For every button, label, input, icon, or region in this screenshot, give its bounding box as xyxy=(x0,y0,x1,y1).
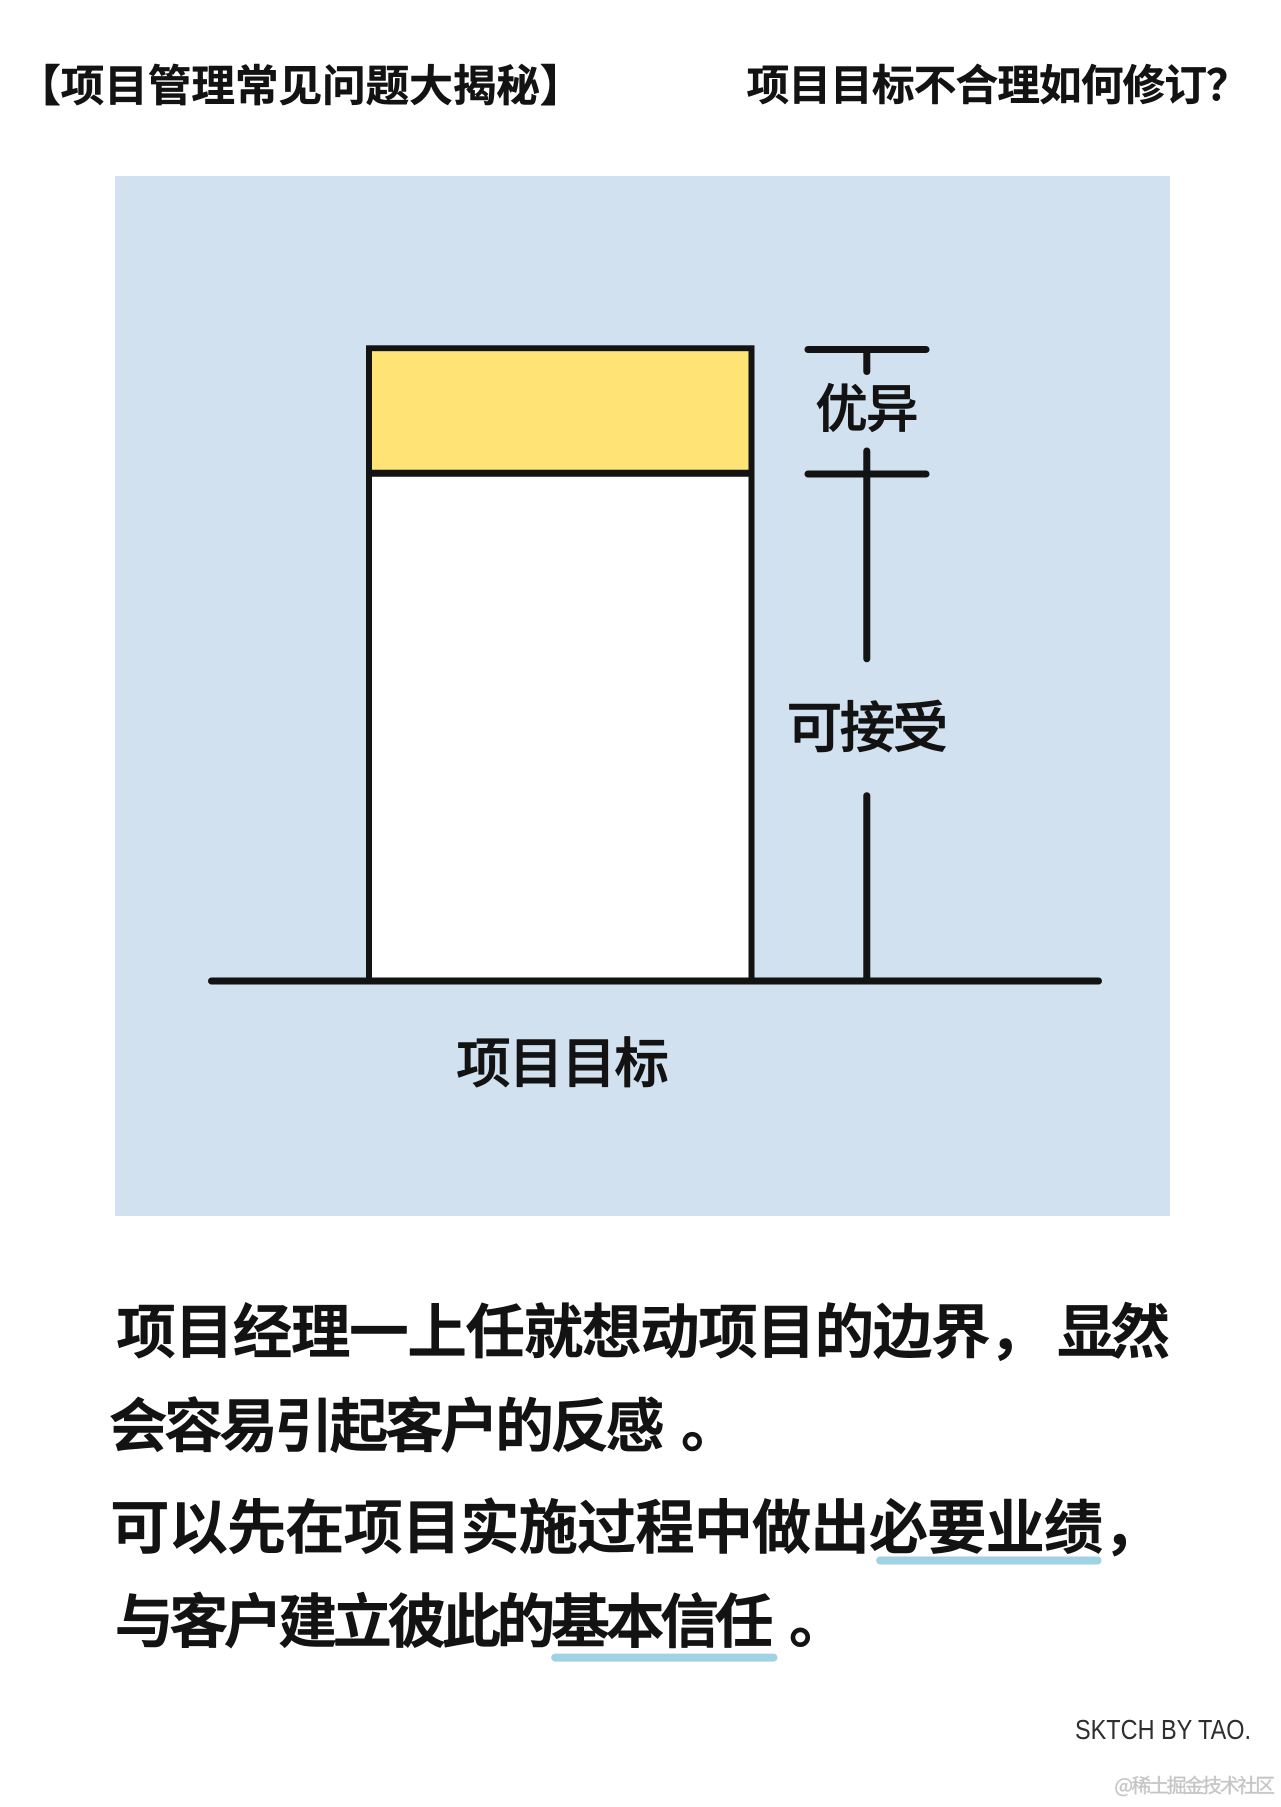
svg-text:SKTCH BY TAO.: SKTCH BY TAO. xyxy=(1075,1714,1251,1745)
